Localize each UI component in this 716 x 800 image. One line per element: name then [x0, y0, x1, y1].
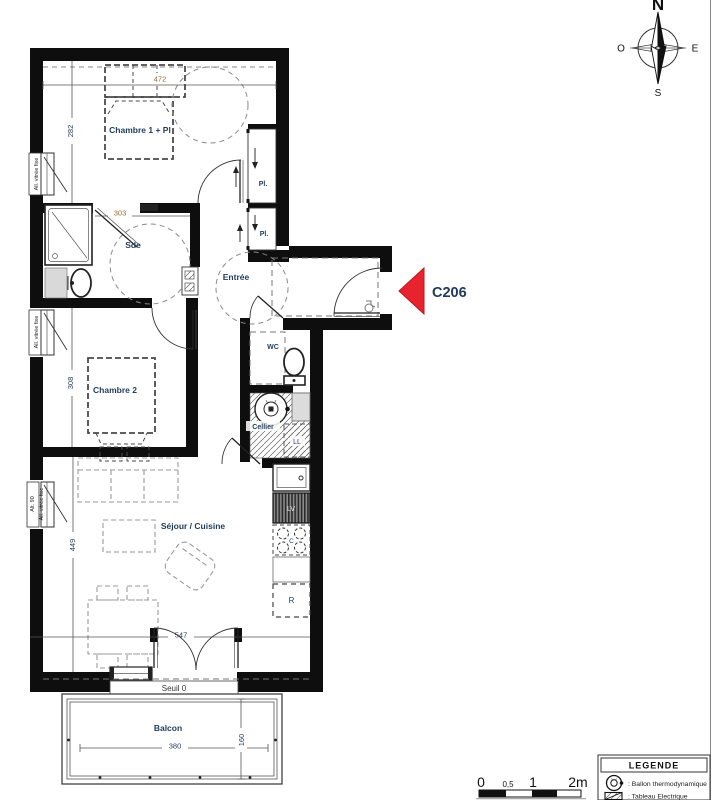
dim-449: 449: [66, 457, 78, 672]
compass-west-label: O: [617, 44, 625, 55]
window-sill-label: Alt. 90: [30, 496, 36, 512]
fridge-slot: R: [273, 584, 310, 617]
turning-circle: [110, 224, 190, 304]
entree-label: Entrée: [223, 272, 250, 282]
window-label: All. vitrée fixe: [34, 158, 40, 191]
chambre1-door-arc: [198, 160, 241, 203]
toilet-icon: [284, 349, 305, 386]
sofa-shape: [78, 458, 178, 502]
legend-item-tableau: : Tableau Electrique: [628, 794, 688, 800]
dining-table-shape: [88, 586, 158, 668]
room-chambre1: Chambre 1 + Pl: [105, 65, 248, 203]
svg-text:160: 160: [237, 734, 246, 747]
dim-282: 282: [65, 61, 77, 203]
pl1-label: Pl.: [259, 181, 268, 188]
low-window: [110, 667, 152, 680]
entrance-arrow: C206: [399, 268, 467, 314]
window-label: All. vitrée fixe: [39, 488, 45, 521]
wc-label: WC: [267, 344, 279, 351]
svg-text:472: 472: [154, 75, 167, 84]
svg-text:308: 308: [66, 377, 75, 390]
scale-0: 0: [477, 774, 485, 790]
compass-rose-icon: N O E S: [617, 0, 699, 99]
window-chambre2: All. vitrée fixe: [29, 310, 67, 355]
sejour-label: Séjour / Cuisine: [161, 521, 226, 531]
washbasin-icon: [68, 269, 91, 297]
window-chambre1: All. vitrée fixe: [29, 153, 67, 195]
kitchen-strip: LV C R: [273, 464, 310, 617]
room-sde: Sde: [45, 205, 198, 304]
washing-machine-slot: LL: [284, 424, 310, 457]
floorplan-sheet: N O E S: [0, 0, 716, 800]
window-label: All. vitrée fixe: [34, 316, 40, 349]
cooktop-label: C: [289, 538, 294, 545]
legend-title: LEGENDE: [629, 761, 680, 771]
turning-circle: [172, 67, 248, 143]
window-sejour: Alt. 90 All. vitrée fixe: [27, 482, 67, 527]
floorplan-drawing: N O E S: [0, 0, 716, 800]
legend-box: LEGENDE : Ballon thermodynamique : Table…: [598, 755, 710, 800]
room-chambre2: Chambre 2: [88, 308, 196, 461]
lv-label: LV: [287, 506, 295, 513]
chambre1-label: Chambre 1 + Pl: [109, 125, 171, 135]
entrance-arrow-icon: [399, 268, 424, 314]
room-wc: WC: [250, 296, 305, 385]
closet-pl2: Pl.: [237, 208, 276, 250]
svg-text:282: 282: [66, 125, 75, 138]
compass-north-label: N: [652, 0, 664, 14]
balcony: Balcon 380 160: [62, 694, 282, 784]
scale-2m: 2m: [568, 774, 587, 790]
chambre2-label: Chambre 2: [93, 385, 137, 395]
scale-1: 1: [529, 774, 537, 790]
french-doors: [154, 628, 238, 670]
dishwasher-icon: LV: [273, 493, 310, 523]
compass-south-label: S: [655, 88, 662, 99]
dim-308: 308: [65, 308, 77, 447]
wheelchair-icon: [365, 301, 375, 312]
compass-east-label: E: [692, 44, 699, 55]
pl2-label: Pl.: [260, 231, 269, 238]
scale-bar: 0 0,5 1 2m: [476, 774, 588, 799]
room-cellier: Cellier LL: [222, 393, 310, 464]
entry-door-arc: [334, 268, 382, 316]
unit-code-label: C206: [432, 285, 467, 301]
svg-text:380: 380: [169, 742, 182, 751]
cooktop-icon: C: [273, 525, 310, 555]
coffee-table-shape: [103, 520, 155, 552]
walls: [30, 48, 392, 692]
legend-item-ballon: : Ballon thermodynamique: [628, 781, 707, 788]
seuil-label: Seuil 0: [162, 684, 187, 693]
armchair-shape: [162, 539, 219, 594]
sde-label: Sde: [125, 240, 141, 250]
shower-icon: [45, 205, 92, 265]
room-entree: Entrée: [216, 252, 382, 324]
kitchen-sink-icon: [273, 464, 310, 491]
ll-label: LL: [293, 439, 301, 446]
legend-electric-panel-icon: [605, 793, 622, 800]
duct-box: [292, 393, 310, 421]
balcon-label: Balcon: [154, 723, 182, 733]
dim-472: 472: [43, 73, 276, 89]
svg-text:303: 303: [114, 209, 127, 218]
svg-text:449: 449: [68, 539, 77, 552]
scale-05: 0,5: [502, 780, 514, 789]
cellier-label: Cellier: [252, 424, 274, 431]
fridge-label: R: [289, 596, 295, 605]
